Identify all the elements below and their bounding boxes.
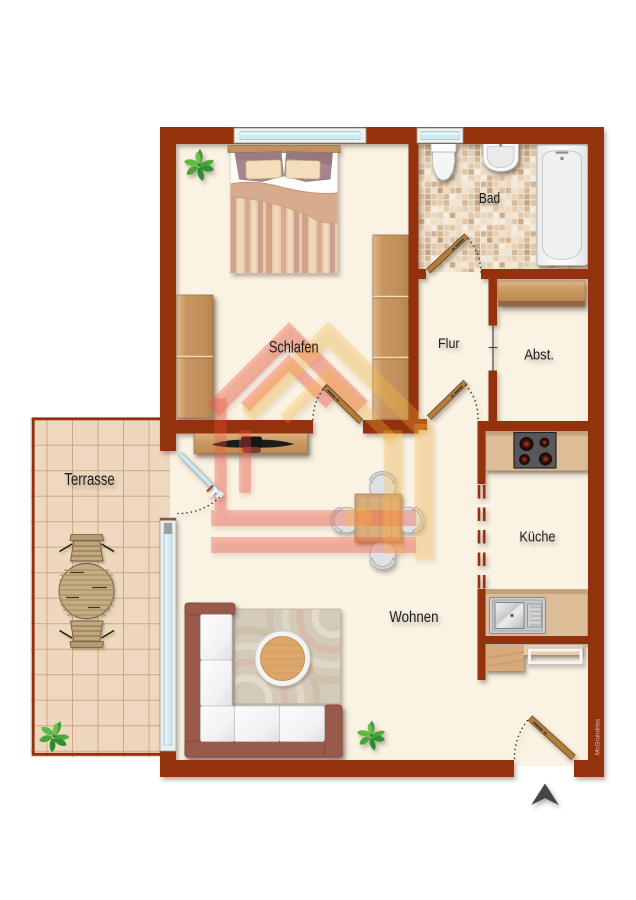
svg-text:Schlafen: Schlafen	[269, 338, 319, 356]
svg-text:Flur: Flur	[438, 336, 460, 351]
svg-text:Bad: Bad	[479, 190, 500, 207]
svg-text:Küche: Küche	[519, 529, 555, 546]
svg-text:Terrasse: Terrasse	[64, 469, 114, 489]
svg-text:McGrundriss: McGrundriss	[595, 718, 602, 755]
svg-text:Wohnen: Wohnen	[389, 609, 438, 626]
svg-text:Abst.: Abst.	[524, 348, 554, 364]
